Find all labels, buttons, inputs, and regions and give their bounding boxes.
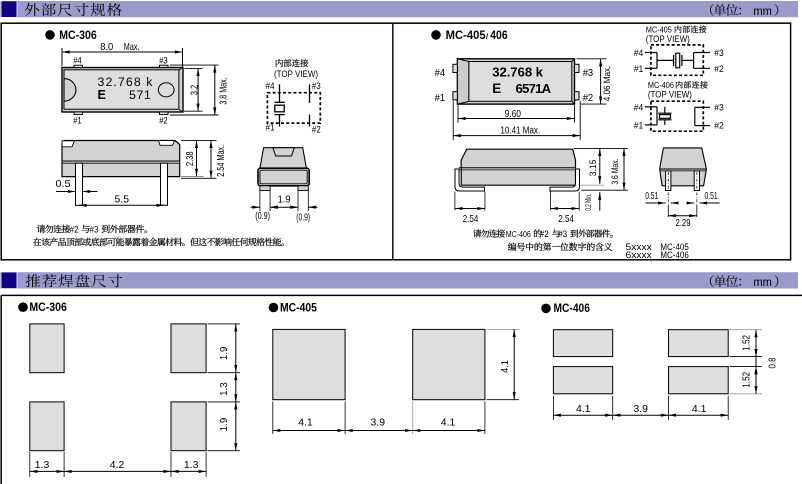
svg-text:(0.9): (0.9): [296, 213, 310, 224]
svg-text:571: 571: [129, 88, 151, 102]
svg-text:#1: #1: [435, 93, 446, 104]
svg-text:1.3: 1.3: [184, 459, 199, 471]
svg-text:3.2: 3.2: [189, 84, 200, 95]
svg-text:/: /: [486, 32, 489, 41]
svg-text:Max.: Max.: [124, 41, 140, 53]
svg-text:#3: #3: [159, 56, 168, 66]
svg-text:MC-406: MC-406: [660, 250, 688, 261]
svg-text:MC-306: MC-306: [29, 300, 67, 314]
svg-text:E: E: [98, 88, 106, 102]
svg-text:#3: #3: [714, 103, 724, 113]
svg-text:mm: mm: [753, 6, 772, 18]
svg-text:1.52: 1.52: [741, 335, 752, 351]
svg-text:#3: #3: [312, 81, 321, 91]
svg-text:MC-406: MC-406: [506, 229, 531, 239]
svg-text:0.8: 0.8: [768, 357, 779, 368]
svg-text:0.2 Min.: 0.2 Min.: [583, 194, 593, 211]
svg-text:2.38: 2.38: [185, 151, 196, 166]
svg-text:#1: #1: [634, 64, 644, 74]
svg-text:MC-405: MC-405: [646, 25, 672, 34]
svg-text:MC-405: MC-405: [280, 301, 317, 315]
svg-text:#2: #2: [714, 64, 724, 74]
svg-text:(TOP VIEW): (TOP VIEW): [274, 69, 318, 79]
svg-text:MC-406: MC-406: [648, 81, 674, 90]
svg-text:2.54 Max.: 2.54 Max.: [216, 145, 227, 177]
svg-text:5.5: 5.5: [115, 194, 130, 206]
svg-text:0.51: 0.51: [705, 191, 718, 202]
svg-text:MC-405: MC-405: [446, 28, 486, 42]
svg-text:2.54: 2.54: [463, 213, 479, 225]
svg-text:0.5: 0.5: [56, 178, 71, 190]
svg-text:32.768 k: 32.768 k: [98, 75, 154, 89]
svg-text:4.1: 4.1: [576, 403, 591, 415]
svg-text:#1: #1: [266, 122, 275, 132]
svg-text:#2: #2: [583, 93, 594, 104]
svg-text:1.9: 1.9: [219, 417, 230, 431]
svg-text:1.52: 1.52: [741, 372, 752, 388]
svg-text:6xxxx: 6xxxx: [626, 250, 652, 261]
svg-text:#4: #4: [634, 48, 644, 58]
svg-text:E: E: [492, 81, 501, 96]
svg-text:4.1: 4.1: [692, 403, 707, 415]
svg-text:4.06 Max.: 4.06 Max.: [602, 66, 612, 102]
svg-text:#2: #2: [312, 125, 321, 135]
svg-text:3.8 Max.: 3.8 Max.: [219, 77, 230, 104]
svg-text:#3: #3: [558, 229, 567, 239]
svg-text:2.29: 2.29: [676, 218, 691, 229]
svg-text:#2: #2: [540, 229, 549, 239]
svg-text:9.60: 9.60: [505, 108, 522, 120]
svg-text:#1: #1: [634, 121, 644, 131]
svg-text:3.15: 3.15: [588, 160, 599, 177]
svg-text:#4: #4: [634, 103, 644, 113]
svg-text:1.3: 1.3: [219, 382, 230, 396]
svg-text:1.9: 1.9: [278, 194, 291, 206]
svg-text:MC-306: MC-306: [59, 28, 97, 42]
svg-text:#4: #4: [266, 81, 275, 91]
svg-text:1.9: 1.9: [219, 346, 230, 360]
svg-text:(0.9): (0.9): [255, 211, 270, 222]
svg-text:8.0: 8.0: [100, 41, 113, 53]
svg-text:#4: #4: [73, 56, 82, 66]
svg-text:1.3: 1.3: [35, 459, 50, 471]
svg-text:4.2: 4.2: [110, 459, 125, 471]
svg-text:3.9: 3.9: [371, 416, 386, 428]
svg-text:mm: mm: [753, 277, 772, 289]
svg-text:4.1: 4.1: [298, 416, 313, 428]
svg-text:2.54: 2.54: [558, 213, 574, 225]
svg-text:(TOP VIEW): (TOP VIEW): [646, 34, 690, 44]
svg-text:3.6 Max.: 3.6 Max.: [610, 159, 621, 185]
svg-text:3.9: 3.9: [633, 403, 648, 415]
svg-text:MC-406: MC-406: [554, 301, 591, 315]
svg-text:0.51: 0.51: [645, 191, 658, 202]
svg-text:#2: #2: [159, 116, 168, 126]
svg-text:32.768 k: 32.768 k: [492, 64, 543, 79]
svg-text:#2: #2: [714, 121, 724, 131]
svg-text:10.41 Max.: 10.41 Max.: [500, 125, 540, 137]
svg-text:#4: #4: [435, 68, 446, 79]
svg-text:#3: #3: [583, 68, 594, 79]
svg-text:6571A: 6571A: [516, 81, 552, 96]
svg-text:#3: #3: [90, 224, 99, 234]
svg-text:#2: #2: [70, 224, 79, 234]
svg-text:406: 406: [490, 28, 508, 42]
svg-text:#1: #1: [73, 116, 82, 126]
svg-text:4.1: 4.1: [441, 416, 456, 428]
svg-text:(TOP VIEW): (TOP VIEW): [648, 90, 692, 100]
svg-text:#3: #3: [714, 48, 724, 58]
svg-text:4.1: 4.1: [500, 360, 511, 373]
